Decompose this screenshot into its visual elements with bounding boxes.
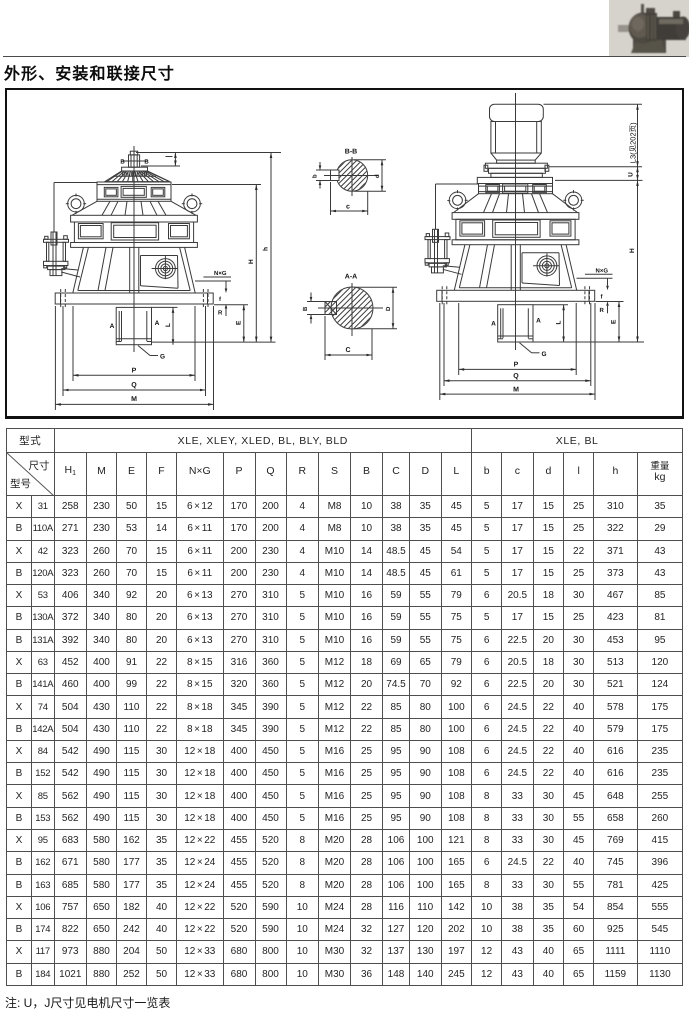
svg-text:P: P (132, 368, 137, 375)
svg-text:R: R (218, 310, 223, 317)
svg-text:N×G: N×G (214, 270, 227, 277)
svg-text:D: D (385, 306, 392, 311)
svg-text:A-A: A-A (345, 274, 357, 281)
svg-text:H: H (629, 248, 636, 253)
svg-text:E: E (611, 319, 618, 324)
svg-text:A: A (155, 320, 160, 327)
svg-text:M: M (131, 396, 137, 403)
svg-text:H: H (248, 259, 255, 264)
svg-text:E: E (236, 320, 243, 325)
svg-text:B-B: B-B (345, 149, 357, 156)
svg-text:B: B (144, 159, 149, 166)
svg-text:G: G (160, 354, 165, 361)
svg-text:A: A (491, 320, 496, 327)
svg-text:U: U (628, 172, 635, 177)
svg-text:h: h (263, 247, 270, 251)
svg-text:G: G (542, 351, 547, 358)
svg-text:B: B (302, 306, 309, 311)
svg-text:Q: Q (513, 373, 519, 380)
svg-text:b: b (312, 174, 319, 178)
svg-text:L: L (555, 321, 562, 325)
svg-text:B: B (120, 159, 125, 166)
svg-text:R: R (600, 307, 605, 314)
svg-text:A: A (110, 323, 115, 330)
svg-text:c: c (346, 204, 350, 211)
svg-text:L3(见202页): L3(见202页) (629, 122, 638, 163)
svg-text:L: L (165, 323, 172, 327)
svg-text:N×G: N×G (596, 267, 609, 274)
svg-text:M: M (513, 386, 519, 393)
svg-text:A: A (536, 317, 541, 324)
svg-text:P: P (514, 362, 519, 369)
svg-text:f: f (601, 293, 604, 300)
svg-text:f: f (219, 296, 222, 303)
svg-text:C: C (345, 347, 350, 354)
svg-text:d: d (374, 174, 381, 178)
svg-text:Q: Q (131, 382, 137, 389)
